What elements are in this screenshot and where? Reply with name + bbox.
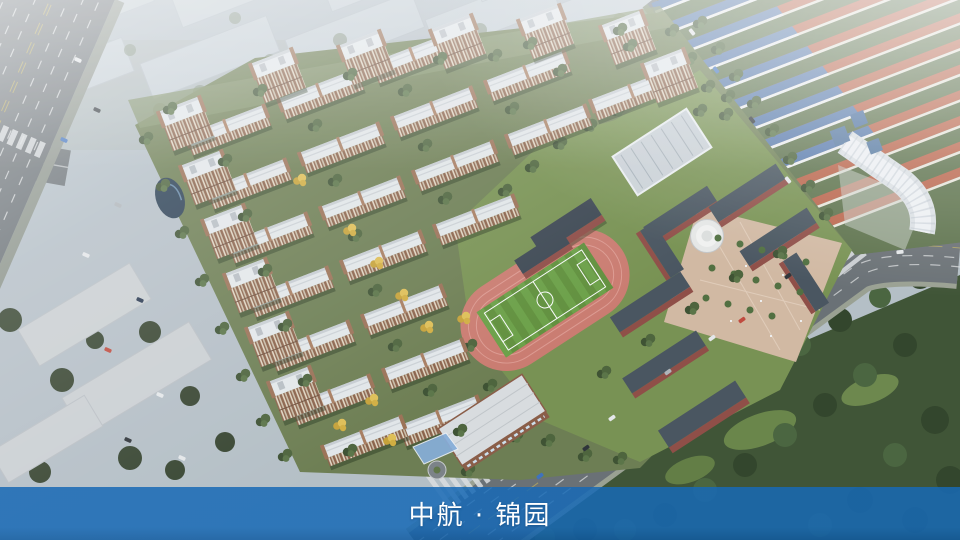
caption-banner: 中航 · 锦园: [0, 487, 960, 540]
aerial-render-image: [0, 0, 960, 540]
project-title: 中航 · 锦园: [0, 487, 960, 540]
haze-overlay: [0, 0, 960, 540]
presentation-slide: 中航 · 锦园: [0, 0, 960, 540]
